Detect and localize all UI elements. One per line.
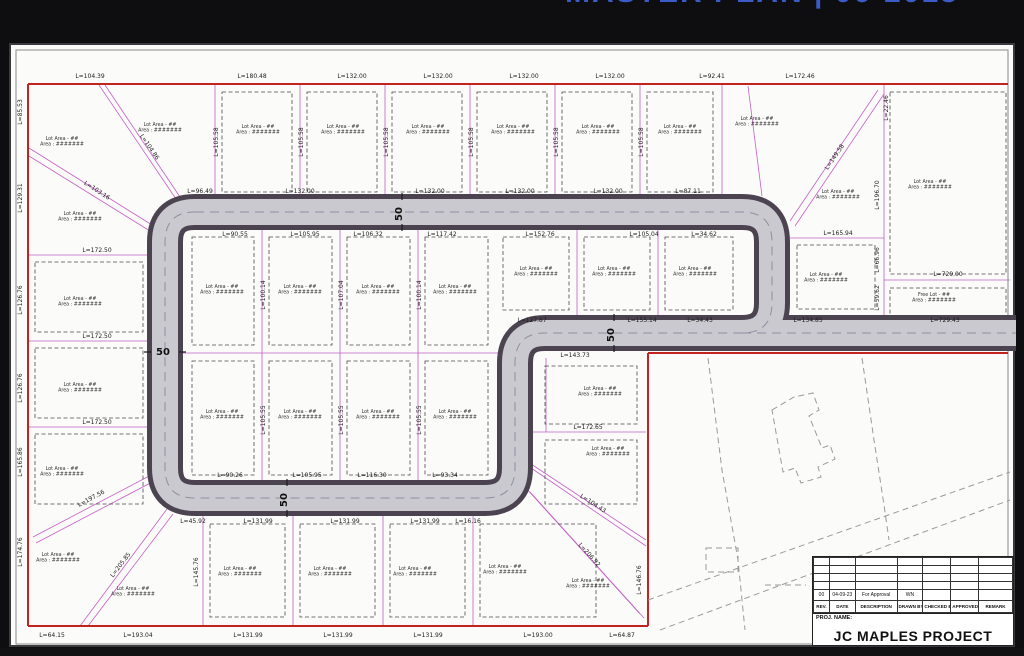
lot-area-label-line2: Area : #######: [111, 592, 155, 598]
dimension-label: L=172.50: [82, 333, 112, 340]
lot-area-label: Lot Area - ##Area : #######: [908, 179, 952, 191]
lot-area-label: Lot Area - ##Area : #######: [433, 409, 477, 421]
dimension-label: L=45.92: [180, 518, 206, 525]
lot-area-label-line2: Area : #######: [804, 278, 848, 284]
col-drawn-by: DRAWN BY: [897, 601, 923, 613]
dimension-label: L=729.43: [930, 317, 960, 324]
lot-area-label-line1: Lot Area - ##: [362, 284, 395, 290]
dimension-label: L=105.95: [292, 472, 322, 479]
dimension-label: L=729.00: [933, 271, 963, 278]
dimension-label: L=132.00: [285, 188, 315, 195]
lot-area-label-line2: Area : #######: [218, 572, 262, 578]
lot-area-label-line1: Lot Area - ##: [439, 284, 472, 290]
dimension-label: L=132.00: [509, 73, 539, 80]
lot-area-label-line1: Lot Area - ##: [242, 124, 275, 130]
revision-header-row: REV. DATE DESCRIPTION DRAWN BY CHECKED B…: [814, 601, 1013, 613]
lot-area-label-line2: Area : #######: [816, 195, 860, 201]
master-plan-page: MASTER PLAN | 06-2013: [0, 0, 1024, 648]
revision-empty-row: [814, 566, 1013, 574]
lot-area-label-line1: Lot Area - ##: [399, 566, 432, 572]
lot-area-label-line2: Area : #######: [406, 130, 450, 136]
lot-area-label-line1: Lot Area - ##: [679, 266, 712, 272]
lot-area-label-line2: Area : #######: [138, 128, 182, 134]
dimension-label: L=105.58: [383, 127, 390, 157]
dimension-label: L=172.50: [82, 419, 112, 426]
dimension-label: L=34.62: [691, 231, 717, 238]
dimension-label: L=66.96: [874, 247, 881, 273]
dimension-label: L=165.94: [823, 230, 853, 237]
lot-area-label-line2: Area : #######: [200, 415, 244, 421]
dimension-label: L=129.31: [17, 183, 24, 213]
lot-area-label: Lot Area - ##Area : #######: [200, 409, 244, 421]
road-width-label: 50: [156, 347, 170, 358]
lot-area-label: Lot Area - ##Area : #######: [58, 296, 102, 308]
lot-area-label-line1: Lot Area - ##: [412, 124, 445, 130]
lot-area-label-line1: Lot Area - ##: [584, 386, 617, 392]
dimension-label: L=126.76: [17, 373, 24, 403]
lot-area-label-line2: Area : #######: [578, 392, 622, 398]
lot-area-label-line1: Lot Area - ##: [497, 124, 530, 130]
lot-area-label-line1: Lot Area - ##: [520, 266, 553, 272]
lot-area-label-line1: Lot Area - ##: [64, 382, 97, 388]
rev-checked-by: [923, 590, 951, 601]
dimension-label: L=172.46: [785, 73, 815, 80]
dimension-label: L=132.00: [505, 188, 535, 195]
free-lot-label-line2: Area : #######: [912, 298, 956, 304]
lot-area-label-line1: Lot Area - ##: [206, 409, 239, 415]
dimension-label: L=90.26: [217, 472, 243, 479]
road-width-label: 50: [606, 328, 617, 342]
lot-area-label: Lot Area - ##Area : #######: [804, 272, 848, 284]
title-block: 00 04-09-23 For Approval WN REV. DATE DE…: [812, 556, 1014, 646]
dimension-label: L=116.30: [357, 472, 387, 479]
lot-area-label-line2: Area : #######: [58, 388, 102, 394]
lot-area-label-line1: Lot Area - ##: [46, 466, 79, 472]
dimension-label: L=105.55: [416, 405, 423, 435]
project-name: JC MAPLES PROJECT: [813, 628, 1013, 644]
dimension-label: L=155.14: [627, 317, 657, 324]
project-name-panel: PROJ. NAME: JC MAPLES PROJECT: [813, 613, 1013, 656]
lot-area-label: Lot Area - ##Area : #######: [433, 284, 477, 296]
dimension-label: L=174.76: [17, 537, 24, 567]
dimension-label: L=105.58: [213, 127, 220, 157]
lot-area-label-line1: Lot Area - ##: [592, 446, 625, 452]
rev-approved-by: [951, 590, 979, 601]
lot-area-label: Lot Area - ##Area : #######: [278, 284, 322, 296]
col-rev: REV.: [814, 601, 830, 613]
lot-area-label-line2: Area : #######: [908, 185, 952, 191]
lot-area-label-line1: Lot Area - ##: [224, 566, 257, 572]
lot-area-label: Lot Area - ##Area : #######: [735, 116, 779, 128]
lot-area-label-line2: Area : #######: [586, 452, 630, 458]
dimension-label: L=193.04: [123, 632, 153, 639]
lot-area-label: Lot Area - ##Area : #######: [592, 266, 636, 278]
free-lot-label: Free Lot - ##Area : #######: [912, 292, 956, 304]
lot-area-label-line1: Lot Area - ##: [284, 284, 317, 290]
lot-area-label-line2: Area : #######: [200, 290, 244, 296]
rev-remark: [979, 590, 1013, 601]
lot-area-label-line1: Lot Area - ##: [314, 566, 347, 572]
dimension-label: L=131.99: [330, 518, 360, 525]
lot-area-label-line2: Area : #######: [433, 290, 477, 296]
lot-area-label-line2: Area : #######: [278, 290, 322, 296]
col-checked-by: CHECKED BY: [923, 601, 951, 613]
lot-area-label: Lot Area - ##Area : #######: [236, 124, 280, 136]
dimension-label: L=92.41: [699, 73, 725, 80]
dimension-label: L=131.99: [233, 632, 263, 639]
revision-row: 00 04-09-23 For Approval WN: [814, 590, 1013, 601]
lot-area-label: Lot Area - ##Area : #######: [36, 552, 80, 564]
lot-area-label-line1: Lot Area - ##: [489, 564, 522, 570]
lot-area-label-line2: Area : #######: [36, 558, 80, 564]
lot-area-label: Lot Area - ##Area : #######: [200, 284, 244, 296]
col-approved-by: APPROVED BY: [951, 601, 979, 613]
lot-area-label-line2: Area : #######: [236, 130, 280, 136]
dimension-label: L=105.58: [468, 127, 475, 157]
dimension-label: L=107.04: [338, 280, 345, 310]
lot-area-label-line1: Lot Area - ##: [284, 409, 317, 415]
lot-area-label-line1: Lot Area - ##: [117, 586, 150, 592]
dimension-label: L=134.85: [793, 317, 823, 324]
rev-drawn-by: WN: [897, 590, 923, 601]
dimension-label: L=193.00: [523, 632, 553, 639]
lot-area-label: Lot Area - ##Area : #######: [514, 266, 558, 278]
dimension-label: L=131.99: [410, 518, 440, 525]
dimension-label: L=96.49: [187, 188, 213, 195]
lot-area-label: Lot Area - ##Area : #######: [491, 124, 535, 136]
lot-area-label-line2: Area : #######: [40, 142, 84, 148]
dimension-label: L=132.00: [595, 73, 625, 80]
lot-area-label: Lot Area - ##Area : #######: [356, 284, 400, 296]
lot-area-label: Lot Area - ##Area : #######: [586, 446, 630, 458]
lot-area-label-line1: Lot Area - ##: [206, 284, 239, 290]
lot-area-label: Lot Area - ##Area : #######: [218, 566, 262, 578]
dimension-label: L=126.76: [17, 285, 24, 315]
dimension-label: L=180.48: [237, 73, 267, 80]
lot-area-label-line2: Area : #######: [576, 130, 620, 136]
lot-area-label: Lot Area - ##Area : #######: [278, 409, 322, 421]
dimension-label: L=132.00: [593, 188, 623, 195]
dimension-label: L=105.58: [553, 127, 560, 157]
dimension-label: L=105.55: [260, 405, 267, 435]
dimension-label: L=105.58: [638, 127, 645, 157]
lot-area-label: Lot Area - ##Area : #######: [40, 466, 84, 478]
lot-area-label-line2: Area : #######: [356, 415, 400, 421]
dimension-label: L=85.53: [17, 99, 24, 125]
lot-area-label-line1: Lot Area - ##: [572, 578, 605, 584]
dimension-label: L=145.76: [193, 557, 200, 587]
lot-area-label-line1: Lot Area - ##: [582, 124, 615, 130]
lot-area-label-line2: Area : #######: [321, 130, 365, 136]
dimension-label: L=172.50: [82, 247, 112, 254]
lot-area-label: Lot Area - ##Area : #######: [356, 409, 400, 421]
lot-area-label: Lot Area - ##Area : #######: [566, 578, 610, 590]
project-name-label: PROJ. NAME:: [816, 615, 852, 621]
lot-area-label-line2: Area : #######: [393, 572, 437, 578]
col-remark: REMARK: [979, 601, 1013, 613]
revision-table: 00 04-09-23 For Approval WN REV. DATE DE…: [813, 557, 1013, 613]
dimension-label: L=131.99: [323, 632, 353, 639]
lot-area-label: Lot Area - ##Area : #######: [578, 386, 622, 398]
lot-area-label: Lot Area - ##Area : #######: [111, 586, 155, 598]
lot-area-label-line2: Area : #######: [735, 122, 779, 128]
lot-area-label-line1: Lot Area - ##: [914, 179, 947, 185]
lot-area-label: Lot Area - ##Area : #######: [40, 136, 84, 148]
rev-number: 00: [814, 590, 830, 601]
lot-area-label: Lot Area - ##Area : #######: [58, 382, 102, 394]
lot-area-label-line1: Lot Area - ##: [810, 272, 843, 278]
dimension-label: L=93.34: [432, 472, 458, 479]
road-width-label: 50: [394, 207, 405, 221]
lot-area-label: Lot Area - ##Area : #######: [138, 122, 182, 134]
lot-area-label-line1: Lot Area - ##: [664, 124, 697, 130]
lot-area-label-line2: Area : #######: [514, 272, 558, 278]
dimension-label: L=146.76: [636, 565, 643, 595]
lot-area-label-line2: Area : #######: [592, 272, 636, 278]
rev-date: 04-09-23: [829, 590, 855, 601]
lot-area-label-line1: Lot Area - ##: [327, 124, 360, 130]
lot-area-label-line2: Area : #######: [566, 584, 610, 590]
dimension-label: L=132.00: [337, 73, 367, 80]
dimension-label: L=196.70: [874, 180, 881, 210]
dimension-label: L=64.15: [39, 632, 65, 639]
lot-area-label-line1: Lot Area - ##: [598, 266, 631, 272]
dimension-label: L=105.58: [298, 127, 305, 157]
lot-area-label: Lot Area - ##Area : #######: [321, 124, 365, 136]
lot-area-label-line1: Lot Area - ##: [42, 552, 75, 558]
lot-area-label-line1: Lot Area - ##: [439, 409, 472, 415]
dimension-label: L=100.14: [260, 280, 267, 310]
dimension-label: L=117.42: [427, 231, 457, 238]
dimension-label: L=16.16: [455, 518, 481, 525]
lot-area-label-line2: Area : #######: [278, 415, 322, 421]
lot-area-label-line1: Lot Area - ##: [64, 211, 97, 217]
dimension-label: L=106.32: [353, 231, 383, 238]
lot-area-label-line1: Lot Area - ##: [741, 116, 774, 122]
dimension-label: L=105.04: [629, 231, 659, 238]
revision-empty-row: [814, 558, 1013, 566]
road-width-label: 50: [279, 493, 290, 507]
master-plan-drawing: L=104.39L=180.48L=132.00L=132.00L=132.00…: [0, 0, 1024, 648]
lot-area-label: Lot Area - ##Area : #######: [308, 566, 352, 578]
lot-area-label: Lot Area - ##Area : #######: [673, 266, 717, 278]
lot-area-label: Lot Area - ##Area : #######: [483, 564, 527, 576]
revision-empty-row: [814, 574, 1013, 582]
dimension-label: L=132.00: [423, 73, 453, 80]
lot-area-label-line2: Area : #######: [308, 572, 352, 578]
dimension-label: L=59.62: [874, 285, 881, 311]
dimension-label: L=100.14: [416, 280, 423, 310]
lot-area-label-line1: Lot Area - ##: [46, 136, 79, 142]
dimension-label: L=105.95: [290, 231, 320, 238]
dimension-label: L=131.99: [413, 632, 443, 639]
lot-area-label: Lot Area - ##Area : #######: [58, 211, 102, 223]
dimension-label: L=22.46: [883, 95, 890, 121]
rev-description: For Approval: [855, 590, 897, 601]
dimension-label: L=143.73: [560, 352, 590, 359]
dimension-label: L=34.43: [687, 317, 713, 324]
lot-area-label: Lot Area - ##Area : #######: [393, 566, 437, 578]
lot-area-label-line1: Lot Area - ##: [822, 189, 855, 195]
dimension-label: L=152.76: [525, 231, 555, 238]
lot-area-label-line2: Area : #######: [491, 130, 535, 136]
lot-area-label-line2: Area : #######: [58, 217, 102, 223]
dimension-label: L=131.99: [243, 518, 273, 525]
dimension-label: L=87.11: [675, 188, 701, 195]
dimension-label: L=64.87: [609, 632, 635, 639]
dimension-label: L=104.39: [75, 73, 105, 80]
lot-area-label-line1: Lot Area - ##: [144, 122, 177, 128]
dimension-label: L=172.65: [573, 424, 603, 431]
lot-area-label: Lot Area - ##Area : #######: [576, 124, 620, 136]
col-date: DATE: [829, 601, 855, 613]
dimension-label: L=127.87: [517, 317, 547, 324]
dimension-label: L=105.55: [338, 405, 345, 435]
lot-area-label: Lot Area - ##Area : #######: [406, 124, 450, 136]
lot-area-label-line2: Area : #######: [58, 302, 102, 308]
lot-area-label-line2: Area : #######: [356, 290, 400, 296]
lot-area-label-line2: Area : #######: [483, 570, 527, 576]
lot-area-label-line1: Lot Area - ##: [362, 409, 395, 415]
lot-area-label-line2: Area : #######: [433, 415, 477, 421]
dimension-label: L=165.86: [17, 447, 24, 477]
lot-area-label-line2: Area : #######: [40, 472, 84, 478]
dimension-label: L=132.00: [415, 188, 445, 195]
col-description: DESCRIPTION: [855, 601, 897, 613]
lot-area-label-line2: Area : #######: [658, 130, 702, 136]
lot-area-label-line1: Lot Area - ##: [64, 296, 97, 302]
lot-area-label: Lot Area - ##Area : #######: [658, 124, 702, 136]
lot-area-label: Lot Area - ##Area : #######: [816, 189, 860, 201]
revision-empty-row: [814, 582, 1013, 590]
dimension-label: L=90.55: [222, 231, 248, 238]
lot-area-label-line2: Area : #######: [673, 272, 717, 278]
free-lot-label-line1: Free Lot - ##: [918, 292, 950, 298]
